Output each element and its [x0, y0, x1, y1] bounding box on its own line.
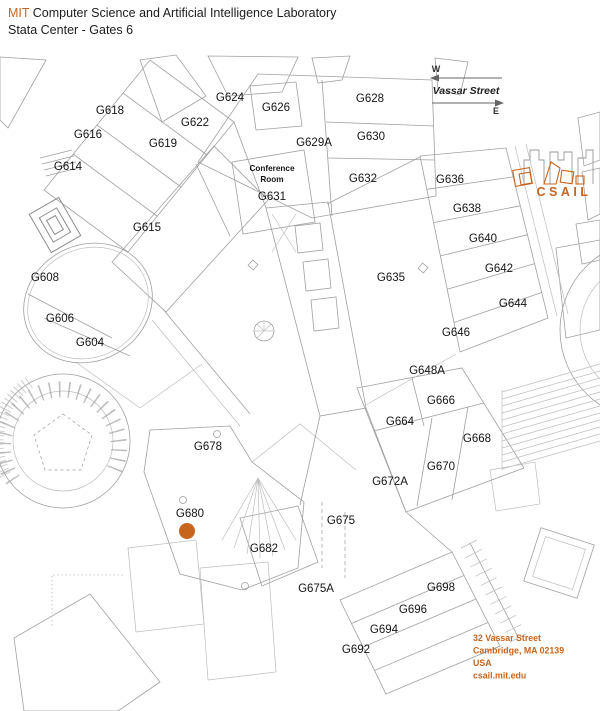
room-label-g646: G646 — [442, 327, 470, 339]
room-label-g615: G615 — [133, 222, 161, 234]
room-label-g604: G604 — [76, 337, 105, 349]
room-label-g619: G619 — [149, 138, 177, 150]
room-label-g626: G626 — [262, 102, 290, 114]
address-line-3: USA — [473, 658, 492, 668]
room-label-g670: G670 — [427, 461, 455, 473]
room-label-g624: G624 — [216, 92, 245, 104]
room-label-g644: G644 — [499, 298, 528, 310]
compass: W Vassar Street E — [430, 64, 504, 116]
room-label-g608: G608 — [31, 272, 59, 284]
room-label-g629a: G629A — [296, 137, 332, 149]
room-label-g696: G696 — [399, 604, 427, 616]
address-line-2: Cambridge, MA 02139 — [473, 646, 564, 656]
room-label-g666: G666 — [427, 395, 455, 407]
room-label-conference: Conference — [249, 164, 294, 173]
room-labels: G618G616G614G619G622G624G626G628G629AG63… — [31, 92, 528, 656]
room-label-g618: G618 — [96, 105, 124, 117]
room-label-g692: G692 — [342, 644, 370, 656]
room-label-g632: G632 — [349, 173, 377, 185]
room-label-g638: G638 — [453, 203, 481, 215]
logo-buildings-orange — [513, 162, 584, 186]
title-text: Computer Science and Artificial Intellig… — [33, 6, 337, 20]
floorplan-map: W Vassar Street E CSAIL 32 Vassar Street… — [0, 0, 600, 711]
csail-logo: CSAIL — [513, 150, 593, 199]
roof-hatch-areas — [0, 55, 600, 711]
room-label-g664: G664 — [386, 416, 415, 428]
room-location-marker — [179, 523, 195, 539]
compass-west-label: W — [432, 64, 441, 74]
room-label-g682: G682 — [250, 543, 278, 555]
room-label-g631: G631 — [258, 191, 286, 203]
room-label-g628: G628 — [356, 93, 384, 105]
room-label-room: Room — [260, 175, 283, 184]
room-label-g642: G642 — [485, 263, 513, 275]
west-arrow-head-icon — [430, 75, 439, 82]
room-label-g635: G635 — [377, 272, 405, 284]
room-label-g640: G640 — [469, 233, 497, 245]
address-line-4: csail.mit.edu — [473, 671, 526, 681]
room-label-g648a: G648A — [409, 365, 445, 377]
room-label-g694: G694 — [370, 624, 399, 636]
room-label-g680: G680 — [176, 508, 204, 520]
room-label-g630: G630 — [357, 131, 385, 143]
page-title: MIT Computer Science and Artificial Inte… — [8, 5, 336, 39]
title-line2: Stata Center - Gates 6 — [8, 22, 336, 39]
room-label-g614: G614 — [54, 161, 83, 173]
room-label-g636: G636 — [436, 174, 464, 186]
title-line1: MIT Computer Science and Artificial Inte… — [8, 5, 336, 22]
room-label-g668: G668 — [463, 433, 491, 445]
compass-east-label: E — [493, 106, 499, 116]
csail-logo-text: CSAIL — [537, 185, 592, 199]
room-label-g698: G698 — [427, 582, 455, 594]
room-label-g678: G678 — [194, 441, 222, 453]
room-label-g622: G622 — [181, 117, 209, 129]
address-block: 32 Vassar Street Cambridge, MA 02139 USA… — [473, 633, 564, 681]
street-label: Vassar Street — [433, 85, 500, 97]
address-line-1: 32 Vassar Street — [473, 633, 541, 643]
brand-mit: MIT — [8, 6, 29, 20]
room-label-g616: G616 — [74, 129, 102, 141]
room-label-g672a: G672A — [372, 476, 408, 488]
room-label-g675: G675 — [327, 515, 355, 527]
room-label-g675a: G675A — [298, 583, 334, 595]
room-label-g606: G606 — [46, 313, 74, 325]
floorplan-geometry — [0, 60, 600, 694]
